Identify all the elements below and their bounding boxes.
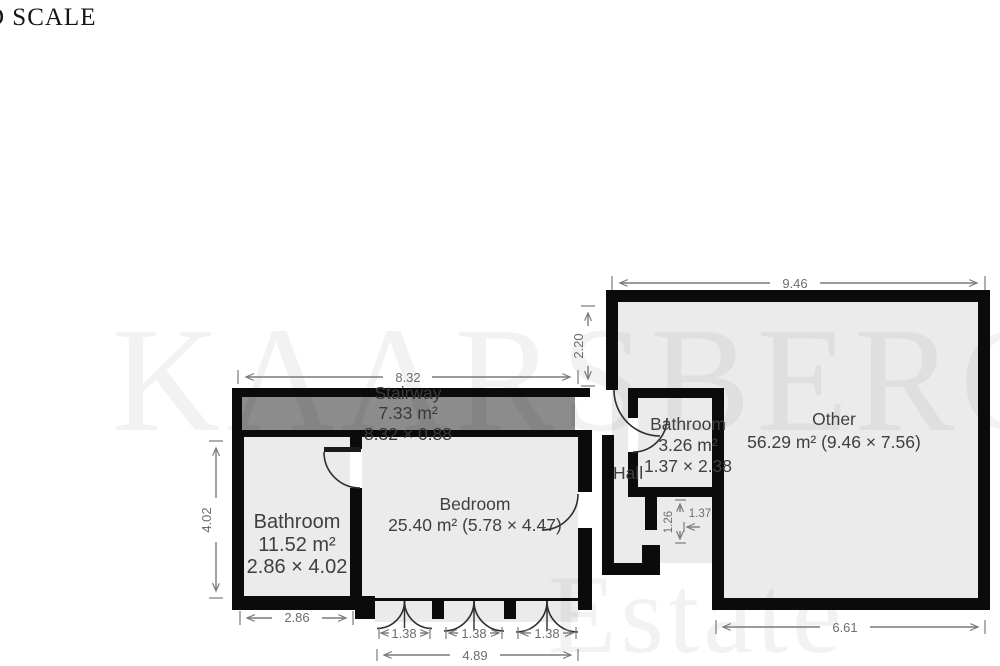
stairway-area: 7.33 m² — [378, 403, 437, 423]
other-area-dims: 56.29 m² (9.46 × 7.56) — [747, 432, 921, 452]
bathroom-left-area: 11.52 m² — [258, 534, 336, 556]
hall-name: Hall — [613, 463, 643, 483]
bathroom-left-dims: 2.86 × 4.02 — [247, 556, 348, 578]
dim-nook-height: 1.26 — [663, 511, 675, 533]
bathroom-left-name: Bathroom — [254, 511, 341, 533]
dim-bath-left-width: 2.86 — [284, 610, 309, 625]
dim-nook-width: 1.37 — [689, 508, 711, 520]
bedroom-area-dims: 25.40 m² (5.78 × 4.47) — [388, 515, 562, 535]
dim-door-2: 1.38 — [461, 626, 486, 641]
dim-doors-total: 4.89 — [462, 648, 487, 663]
dim-other-top: 9.46 — [782, 276, 807, 291]
bedroom-name: Bedroom — [439, 494, 510, 514]
stairway-dims: 8.32 × 0.88 — [364, 424, 452, 444]
bathroom-small-name: Bathroom — [650, 414, 726, 434]
dim-other-left: 2.20 — [571, 333, 586, 358]
bathroom-left-door-leaf — [324, 447, 361, 452]
other-name: Other — [812, 409, 856, 429]
dim-bath-left-height: 4.02 — [199, 507, 214, 532]
floorplan-drawing: KAARSBERG Estate — [0, 0, 1000, 666]
dim-door-3: 1.38 — [534, 626, 559, 641]
dim-door-1: 1.38 — [391, 626, 416, 641]
floorplan-page: D SCALE KAARSBERG Estate — [0, 0, 1000, 666]
bathroom-small-area: 3.26 m² — [658, 435, 717, 455]
stairway-name: Stairway — [374, 383, 441, 403]
bathroom-small-dims: 1.37 × 2.38 — [644, 456, 732, 476]
dim-other-bottom: 6.61 — [832, 620, 857, 635]
